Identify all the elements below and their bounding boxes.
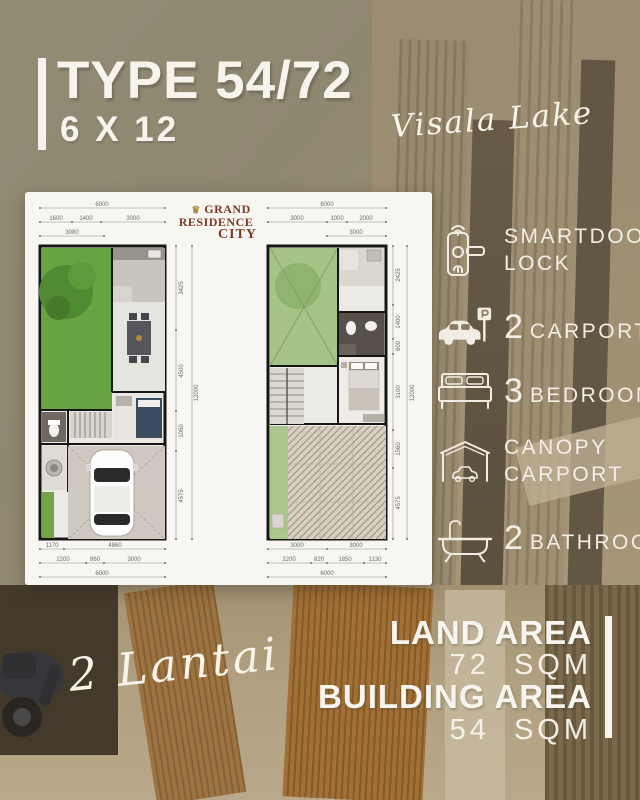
- canopy-carport-icon: [436, 437, 494, 485]
- dim-label: 6000: [320, 571, 333, 577]
- dim-label: 820: [314, 557, 324, 563]
- dim-label: 1130: [369, 557, 382, 563]
- dim-label: 4575: [396, 496, 402, 509]
- title-accent-bar: [38, 58, 46, 150]
- dim-label: 3425: [179, 281, 185, 294]
- dim-label: 1400: [79, 216, 92, 222]
- bathtub-icon: [436, 515, 494, 563]
- roof-garden-void: [270, 248, 338, 366]
- dim-label: 6000: [320, 202, 333, 208]
- dim-label: 1850: [338, 557, 351, 563]
- dim-label: 1400: [396, 315, 402, 328]
- dim-label: 860: [90, 557, 100, 563]
- dim-label: 3000: [349, 543, 362, 549]
- feature-smartdoor-lock: SMARTDOOR LOCK: [436, 220, 640, 280]
- bathroom-2: [338, 312, 384, 356]
- feature-label: SMARTDOOR LOCK: [504, 223, 640, 278]
- smartdoor-lock-icon: [436, 220, 494, 280]
- floorplan-panel: ♛ GRAND RESIDENCE CITY: [25, 192, 432, 585]
- dining-room: [112, 302, 165, 392]
- area-info: LAND AREA 72 SQM BUILDING AREA 54 SQM: [318, 616, 612, 745]
- dim-label: 1600: [49, 216, 62, 222]
- dim-label: 4860: [108, 543, 121, 549]
- bed-icon: [436, 370, 494, 412]
- laundry: [42, 446, 66, 490]
- lot-dimensions: 6 X 12: [60, 110, 179, 150]
- dim-label: 3000: [126, 216, 139, 222]
- dim-label: 3000: [290, 216, 303, 222]
- floorplan-ground-floor-drawing: [30, 196, 230, 581]
- flyer-canvas: TYPE 54/72 6 X 12 Visala Lake ♛ GRAND RE…: [0, 0, 640, 800]
- dim-label: 4500: [179, 364, 185, 377]
- dim-label: 4575: [179, 489, 185, 502]
- feature-bathroom: 2 BATHROOM: [436, 515, 640, 563]
- kitchen: [112, 248, 165, 302]
- balcony: [338, 248, 384, 286]
- floorplan-second-floor-drawing: [243, 196, 438, 581]
- dim-label: 2200: [56, 557, 69, 563]
- land-area-value: 72 SQM: [318, 650, 592, 680]
- car: [86, 450, 138, 536]
- dim-label: 600: [396, 341, 402, 351]
- roof-deck-hatched: [288, 426, 386, 539]
- stairs: [270, 368, 304, 424]
- floorplan-ground-floor: 6000 1600 1400 3000 3080 1170 4860 2200 …: [30, 196, 230, 581]
- bedroom-1: [114, 394, 163, 442]
- dim-label: 3000: [349, 230, 362, 236]
- page-title: TYPE 54/72: [57, 50, 353, 111]
- building-area-label: BUILDING AREA: [318, 680, 592, 714]
- bedroom-2: [339, 358, 384, 422]
- dim-label: 6000: [95, 202, 108, 208]
- feature-label: BATHROOM: [530, 531, 640, 555]
- carport-icon: [436, 304, 494, 350]
- dim-label: 2425: [396, 268, 402, 281]
- dim-label: 1560: [396, 442, 402, 455]
- dim-label: 1060: [179, 424, 185, 437]
- feature-list: SMARTDOOR LOCK 2 CARPORT: [436, 220, 640, 584]
- feature-count: 3: [504, 372, 523, 411]
- feature-count: 2: [504, 308, 523, 347]
- dim-label: 3000: [290, 543, 303, 549]
- dim-label: 12000: [410, 385, 416, 402]
- dim-label: 1000: [330, 216, 343, 222]
- feature-bedrooms: 3 BEDROOMS: [436, 370, 640, 412]
- area-accent-bar: [605, 616, 612, 738]
- feature-count: 2: [504, 519, 523, 558]
- stairs: [70, 412, 112, 438]
- floorplan-second-floor: 6000 3000 1000 2000 3000 3000 3000 2200 …: [243, 196, 438, 581]
- building-area-value: 54 SQM: [318, 715, 592, 745]
- feature-carport: 2 CARPORT: [436, 304, 640, 350]
- dim-label: 3100: [396, 385, 402, 398]
- feature-label: CARPORT: [530, 320, 640, 344]
- dim-label: 12000: [194, 385, 200, 402]
- garden: [39, 248, 112, 410]
- planter-strip: [270, 426, 288, 539]
- dim-label: 3000: [127, 557, 140, 563]
- dim-label: 2000: [359, 216, 372, 222]
- land-area-label: LAND AREA: [318, 616, 592, 650]
- bathroom-1: [42, 412, 66, 442]
- feature-label: BEDROOMS: [530, 384, 640, 408]
- feature-label: CANOPY CARPORT: [504, 434, 624, 489]
- dim-label: 6000: [95, 571, 108, 577]
- feature-canopy-carport: CANOPY CARPORT: [436, 434, 640, 489]
- dim-label: 3080: [65, 230, 78, 236]
- dim-label: 1170: [46, 543, 59, 549]
- dim-label: 2200: [282, 557, 295, 563]
